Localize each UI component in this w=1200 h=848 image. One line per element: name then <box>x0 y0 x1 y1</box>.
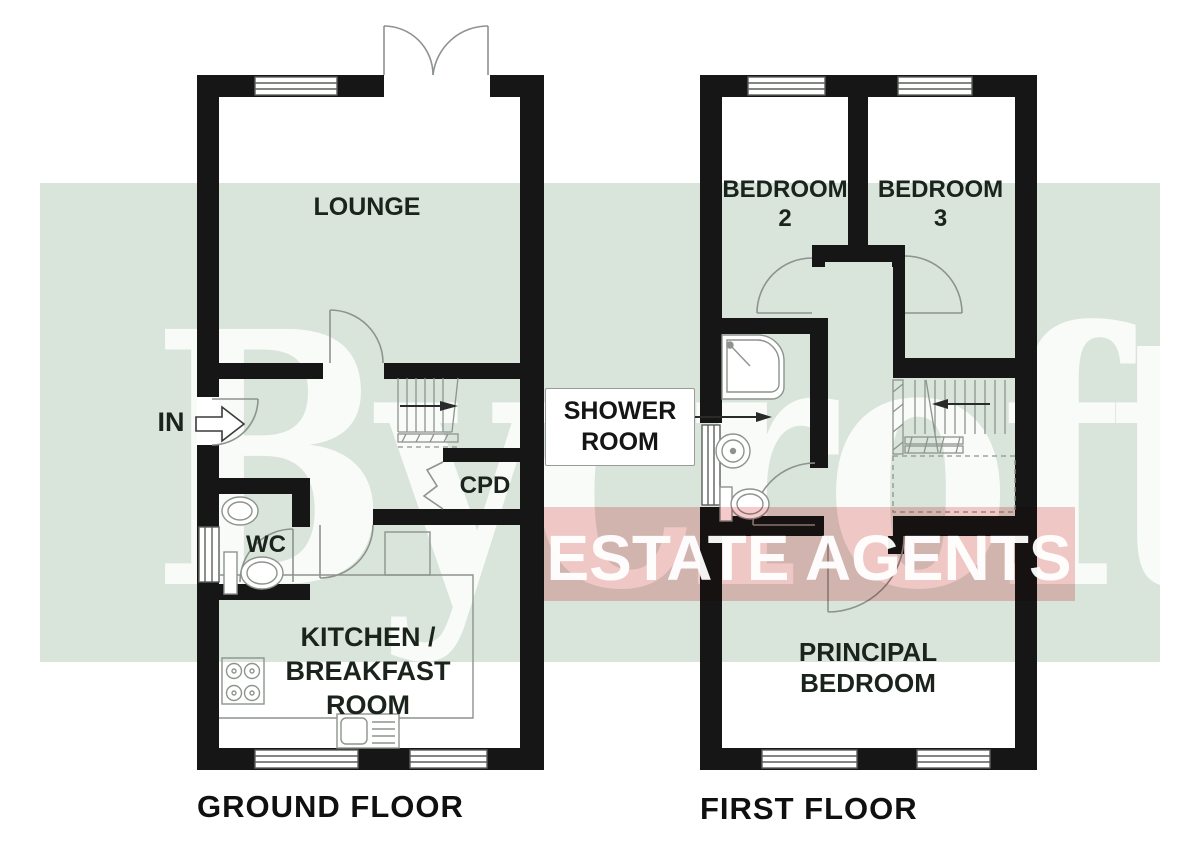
lounge-door-icon <box>330 310 383 363</box>
window-principal-bottom-1 <box>762 750 857 768</box>
first-floor-caption: FIRST FLOOR <box>700 791 918 827</box>
bedroom2-label: BEDROOM 2 <box>705 175 865 233</box>
first-stairs <box>893 380 1015 512</box>
french-doors-icon <box>384 26 488 75</box>
window-wc-left <box>199 527 219 582</box>
kitchen-label: KITCHEN / BREAKFAST ROOM <box>268 620 468 722</box>
shower-basin-icon <box>716 434 750 468</box>
wc-basin-icon <box>222 497 258 525</box>
window-bedroom3-top <box>898 77 972 95</box>
window-principal-bottom-2 <box>917 750 990 768</box>
shower-room-label: SHOWER ROOM <box>545 388 695 466</box>
window-kitchen-bottom-1 <box>255 750 358 768</box>
bedroom3-door-icon <box>905 256 962 313</box>
ground-stairs <box>398 378 458 447</box>
kitchen-tall-unit <box>385 532 430 575</box>
shower-fixtures <box>716 335 784 521</box>
window-lounge-top <box>255 77 337 95</box>
floorplan-page: Bycroft <box>0 0 1200 848</box>
estate-agents-banner-band <box>543 507 1075 601</box>
kitchen-door-icon <box>320 525 373 578</box>
cupboard-label: CPD <box>445 472 525 501</box>
cupboard-door-icon <box>424 462 443 509</box>
window-kitchen-bottom-2 <box>410 750 487 768</box>
stairs-down-arrow-icon <box>932 399 990 409</box>
hob-icon <box>222 658 264 704</box>
window-shower-left <box>702 425 720 505</box>
wc-label: WC <box>226 531 306 560</box>
window-bedroom2-top <box>748 77 825 95</box>
ground-floor-caption: GROUND FLOOR <box>197 789 464 825</box>
stairs-up-arrow-icon <box>400 401 458 411</box>
lounge-label: LOUNGE <box>267 192 467 222</box>
bedroom3-label: BEDROOM 3 <box>858 175 1023 233</box>
ground-openings <box>197 74 490 445</box>
principal-bedroom-label: PRINCIPAL BEDROOM <box>768 637 968 699</box>
bedroom2-door-icon <box>757 258 812 313</box>
shower-tray-icon <box>722 335 784 399</box>
entrance-in-label: IN <box>148 406 194 438</box>
